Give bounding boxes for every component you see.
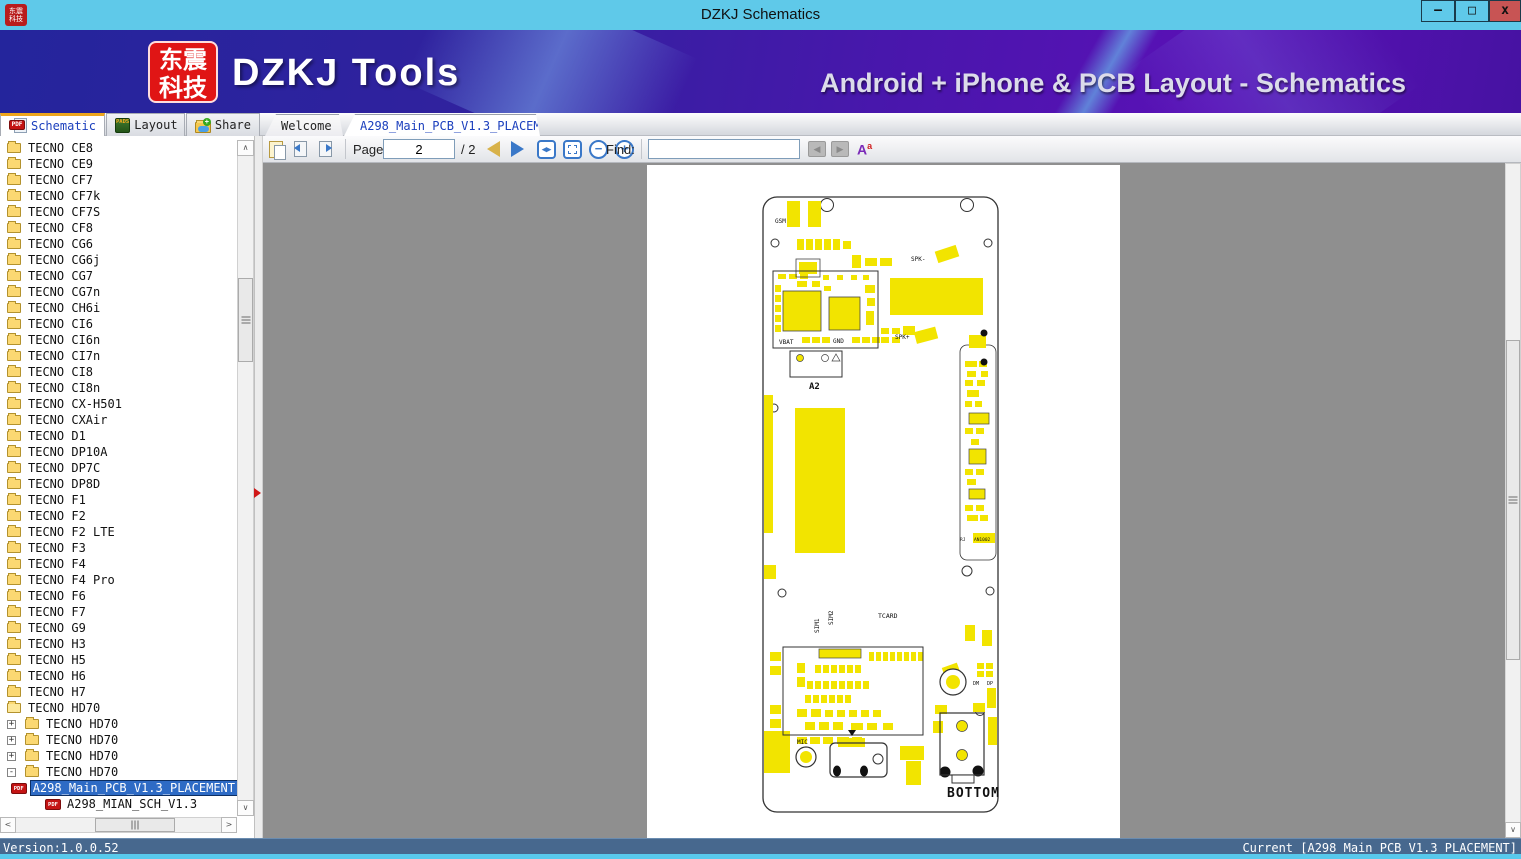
- tree-expander-icon[interactable]: -: [7, 768, 16, 777]
- find-label: Find:: [606, 142, 635, 157]
- tree-item-folder[interactable]: TECNO CF7k: [0, 188, 237, 204]
- tree-item-label: TECNO HD70: [26, 701, 102, 715]
- pcb-label-gnd: GND: [833, 338, 844, 345]
- pads-icon: PADS: [115, 118, 130, 133]
- tree-item-folder[interactable]: -TECNO HD70: [0, 764, 237, 780]
- doc-tab-label: A298_Main_PCB_V1.3_PLACEMENT: [360, 119, 562, 133]
- scroll-up-icon[interactable]: ∧: [237, 140, 254, 156]
- pdf-icon: PDF: [9, 118, 27, 134]
- tree-item-folder[interactable]: TECNO F2 LTE: [0, 524, 237, 540]
- tree-item-folder[interactable]: TECNO CI7n: [0, 348, 237, 364]
- tree-item-folder[interactable]: +TECNO HD70: [0, 748, 237, 764]
- tree-item-folder[interactable]: TECNO CI6: [0, 316, 237, 332]
- tree-item-label: TECNO CI6n: [26, 333, 102, 347]
- close-tab-icon[interactable]: ×: [567, 120, 574, 132]
- share-folder-icon: +: [195, 118, 211, 133]
- close-button[interactable]: x: [1489, 0, 1521, 22]
- folder-icon: [7, 175, 21, 185]
- folder-tree: TECNO CE8TECNO CE9TECNO CF7TECNO CF7kTEC…: [0, 140, 237, 816]
- folder-icon: [7, 447, 21, 457]
- tree-item-folder[interactable]: TECNO CG6j: [0, 252, 237, 268]
- tree-item-folder[interactable]: TECNO F6: [0, 588, 237, 604]
- tree-item-folder[interactable]: TECNO H7: [0, 684, 237, 700]
- pdf-icon: PDF: [11, 783, 27, 794]
- folder-icon: [7, 367, 21, 377]
- match-case-icon[interactable]: Aa: [857, 139, 872, 159]
- folder-icon: [7, 255, 21, 265]
- tree-item-label: TECNO HD70: [44, 733, 120, 747]
- tree-item-folder[interactable]: TECNO DP8D: [0, 476, 237, 492]
- tree-item-label: TECNO CF7: [26, 173, 95, 187]
- product-name: DZKJ Tools: [232, 52, 460, 95]
- tree-item-folder[interactable]: TECNO CE8: [0, 140, 237, 156]
- tree-item-label: TECNO CG6j: [26, 253, 102, 267]
- pcb-label-dp: DP: [987, 681, 993, 687]
- folder-icon: [7, 463, 21, 473]
- fit-page-button[interactable]: [563, 139, 582, 159]
- folder-icon: [7, 623, 21, 633]
- folder-icon: [7, 335, 21, 345]
- header-banner: 东震科技 DZKJ Tools Android + iPhone & PCB L…: [0, 30, 1521, 113]
- brand-logo: 东震科技: [148, 41, 218, 103]
- tab-share[interactable]: + Share: [186, 113, 260, 136]
- tree-item-label: TECNO H7: [26, 685, 88, 699]
- tree-item-label: TECNO H5: [26, 653, 88, 667]
- tree-item-label: TECNO DP7C: [26, 461, 102, 475]
- tree-item-folder[interactable]: TECNO G9: [0, 620, 237, 636]
- tab-schematic[interactable]: PDF Schematic: [0, 113, 105, 136]
- tree-item-label: TECNO H6: [26, 669, 88, 683]
- folder-icon: [7, 655, 21, 665]
- tree-item-label: TECNO D1: [26, 429, 88, 443]
- folder-icon: [7, 207, 21, 217]
- tree-item-label: TECNO G9: [26, 621, 88, 635]
- tree-item-folder[interactable]: TECNO F3: [0, 540, 237, 556]
- tree-item-document[interactable]: PDFA298_Main_PCB_V1.3_PLACEMENT: [0, 780, 237, 796]
- pcb-label-mic: MIC: [797, 739, 808, 746]
- tree-item-label: TECNO HD70: [44, 749, 120, 763]
- tree-item-folder[interactable]: TECNO CE9: [0, 156, 237, 172]
- pcb-label-spk-minus: SPK-: [911, 256, 925, 263]
- find-next-button[interactable]: ▶: [831, 139, 849, 159]
- tree-item-label: TECNO DP8D: [26, 477, 102, 491]
- folder-icon: [7, 559, 21, 569]
- prev-page-button[interactable]: [487, 139, 500, 159]
- tree-item-folder[interactable]: TECNO H3: [0, 636, 237, 652]
- folder-icon: [25, 767, 39, 777]
- folder-icon: [25, 751, 39, 761]
- tree-item-folder[interactable]: TECNO F1: [0, 492, 237, 508]
- viewer-scroll-down-icon[interactable]: ∨: [1505, 822, 1521, 838]
- folder-icon: [7, 239, 21, 249]
- fit-width-button[interactable]: ◂▸: [537, 139, 556, 159]
- tree-item-folder[interactable]: TECNO CF7S: [0, 204, 237, 220]
- folder-icon: [7, 527, 21, 537]
- tree-item-label: TECNO F4 Pro: [26, 573, 117, 587]
- tree-item-label: TECNO CI7n: [26, 349, 102, 363]
- folder-icon: [7, 575, 21, 585]
- version-label: Version:1.0.0.52: [3, 841, 119, 855]
- pcb-label-dm: DM: [973, 681, 979, 687]
- folder-icon: [7, 319, 21, 329]
- folder-icon: [7, 303, 21, 313]
- minimize-button[interactable]: –: [1421, 0, 1455, 22]
- folder-icon: [25, 719, 39, 729]
- tree-expander-icon[interactable]: +: [7, 720, 16, 729]
- folder-icon: [7, 431, 21, 441]
- sidebar-hscroll-thumb[interactable]: [95, 818, 175, 832]
- tab-label: Schematic: [31, 119, 96, 133]
- tree-item-folder[interactable]: TECNO CG7n: [0, 284, 237, 300]
- tree-item-label: A298_MIAN_SCH_V1.3: [65, 797, 199, 811]
- pcb-label-bottom: BOTTOM: [947, 786, 1000, 801]
- tree-item-document[interactable]: PDFA298_MIAN_SCH_V1.3: [0, 796, 237, 812]
- tree-item-folder[interactable]: TECNO H6: [0, 668, 237, 684]
- pcb-label-an1002: AN1002: [974, 537, 991, 543]
- application-window: 东震科技 DZKJ Schematics – □ x 东震科技 DZKJ Too…: [0, 0, 1521, 859]
- rotate-left-button[interactable]: [294, 139, 307, 159]
- sidebar-vscrollbar[interactable]: [237, 140, 254, 816]
- folder-icon: [7, 191, 21, 201]
- scroll-right-icon[interactable]: >: [221, 817, 237, 833]
- pcb-label-a2: A2: [809, 382, 820, 392]
- tree-item-folder[interactable]: TECNO F4: [0, 556, 237, 572]
- tree-item-folder[interactable]: TECNO F4 Pro: [0, 572, 237, 588]
- folder-icon: [7, 495, 21, 505]
- sidebar-vscroll-thumb[interactable]: [238, 278, 253, 362]
- tree-item-folder[interactable]: TECNO F7: [0, 604, 237, 620]
- pcb-placement-drawing: GSM SPK- SPK+ VBAT GND A2 AN1002 RJ SIM1…: [647, 165, 1120, 838]
- doc-tab-placement[interactable]: A298_Main_PCB_V1.3_PLACEMENT ×: [344, 114, 540, 136]
- tree-item-label: TECNO F2: [26, 509, 88, 523]
- tree-item-folder[interactable]: TECNO DP10A: [0, 444, 237, 460]
- folder-icon: [7, 415, 21, 425]
- tree-item-label: TECNO CX-H501: [26, 397, 124, 411]
- title-bar: 东震科技 DZKJ Schematics – □ x: [0, 0, 1521, 30]
- tree-item-label: TECNO CI8: [26, 365, 95, 379]
- pcb-label-rj: RJ: [960, 537, 966, 543]
- tree-item-folder[interactable]: TECNO CI8: [0, 364, 237, 380]
- tree-item-folder[interactable]: TECNO D1: [0, 428, 237, 444]
- tree-item-label: TECNO F4: [26, 557, 88, 571]
- tree-item-folder[interactable]: TECNO H5: [0, 652, 237, 668]
- folder-icon: [7, 511, 21, 521]
- tree-item-folder[interactable]: TECNO CH6i: [0, 300, 237, 316]
- tree-item-label: TECNO CG6: [26, 237, 95, 251]
- tree-item-folder[interactable]: TECNO CX-H501: [0, 396, 237, 412]
- tree-item-folder[interactable]: +TECNO HD70: [0, 716, 237, 732]
- tree-item-label: TECNO CF7k: [26, 189, 102, 203]
- folder-icon: [7, 159, 21, 169]
- folder-icon: [7, 479, 21, 489]
- tree-item-label: TECNO F1: [26, 493, 88, 507]
- tree-item-folder[interactable]: TECNO CXAir: [0, 412, 237, 428]
- scroll-left-icon[interactable]: <: [0, 817, 16, 833]
- folder-icon: [25, 735, 39, 745]
- tree-item-folder[interactable]: TECNO CG7: [0, 268, 237, 284]
- tree-item-label: TECNO F3: [26, 541, 88, 555]
- viewer-vscroll-thumb[interactable]: [1506, 340, 1520, 660]
- scroll-down-icon[interactable]: ∨: [237, 800, 254, 816]
- folder-icon: [7, 607, 21, 617]
- tab-label: Share: [215, 118, 251, 132]
- tab-strip: PDF Schematic PADS Layout + Share Welcom…: [0, 113, 1521, 136]
- tree-item-label: TECNO CE8: [26, 141, 95, 155]
- folder-icon: [7, 687, 21, 697]
- folder-icon: [7, 383, 21, 393]
- tree-item-folder[interactable]: TECNO CI8n: [0, 380, 237, 396]
- tree-item-label: TECNO CG7n: [26, 285, 102, 299]
- folder-icon: [7, 223, 21, 233]
- banner-tagline: Android + iPhone & PCB Layout - Schemati…: [820, 68, 1406, 99]
- find-input[interactable]: [648, 139, 800, 159]
- tree-item-folder[interactable]: TECNO CF8: [0, 220, 237, 236]
- pcb-label-vbat: VBAT: [779, 339, 794, 346]
- doc-tab-welcome[interactable]: Welcome: [265, 114, 343, 136]
- tree-item-label: TECNO CI8n: [26, 381, 102, 395]
- folder-icon: [7, 639, 21, 649]
- viewer-toolbar: Page: / 2 ◂▸ − + Find: ◀ ▶ Aa: [263, 136, 1521, 163]
- pcb-label-sim2: SIM2: [828, 610, 835, 625]
- current-document-label: Current [A298_Main_PCB_V1.3_PLACEMENT]: [1242, 841, 1517, 855]
- find-previous-button[interactable]: ◀: [808, 139, 826, 159]
- pcb-label-gsm: GSM: [775, 218, 786, 225]
- tree-item-label: A298_Main_PCB_V1.3_PLACEMENT: [31, 781, 237, 795]
- tree-item-label: TECNO HD70: [44, 765, 120, 779]
- folder-icon: [7, 287, 21, 297]
- collapse-arrow-icon[interactable]: [254, 488, 261, 498]
- tab-layout[interactable]: PADS Layout: [106, 113, 185, 136]
- tab-label: Layout: [134, 118, 177, 132]
- tree-item-label: TECNO F2 LTE: [26, 525, 117, 539]
- tree-item-label: TECNO CH6i: [26, 301, 102, 315]
- folder-icon: [7, 591, 21, 601]
- folder-icon: [7, 351, 21, 361]
- folder-icon: [7, 143, 21, 153]
- tree-item-folder[interactable]: TECNO CF7: [0, 172, 237, 188]
- tree-item-label: TECNO F6: [26, 589, 88, 603]
- tree-item-label: TECNO CF7S: [26, 205, 102, 219]
- window-title: DZKJ Schematics: [0, 6, 1521, 23]
- tree-expander-icon[interactable]: +: [7, 736, 16, 745]
- tree-item-label: TECNO F7: [26, 605, 88, 619]
- tree-item-label: TECNO CF8: [26, 221, 95, 235]
- tree-item-label: TECNO HD70: [44, 717, 120, 731]
- tree-item-label: TECNO CE9: [26, 157, 95, 171]
- doc-tab-label: Welcome: [281, 119, 332, 133]
- tree-item-label: TECNO CXAir: [26, 413, 109, 427]
- pcb-placement-page: GSM SPK- SPK+ VBAT GND A2 AN1002 RJ SIM1…: [647, 165, 1120, 838]
- tree-item-label: TECNO CI6: [26, 317, 95, 331]
- pcb-label-sim1: SIM1: [814, 618, 821, 633]
- tree-item-folder[interactable]: TECNO HD70: [0, 700, 237, 716]
- tree-item-folder[interactable]: TECNO CI6n: [0, 332, 237, 348]
- tree-item-folder[interactable]: TECNO F2: [0, 508, 237, 524]
- copy-page-button[interactable]: [269, 139, 283, 159]
- folder-icon: [7, 399, 21, 409]
- page-label: Page:: [353, 142, 387, 157]
- tree-item-folder[interactable]: TECNO CG6: [0, 236, 237, 252]
- panel-splitter[interactable]: [255, 136, 263, 838]
- tree-item-label: TECNO H3: [26, 637, 88, 651]
- tree-item-folder[interactable]: +TECNO HD70: [0, 732, 237, 748]
- tree-item-label: TECNO CG7: [26, 269, 95, 283]
- tree-item-label: TECNO DP10A: [26, 445, 109, 459]
- model-tree-panel: TECNO CE8TECNO CE9TECNO CF7TECNO CF7kTEC…: [0, 136, 255, 838]
- folder-icon: [7, 671, 21, 681]
- maximize-button[interactable]: □: [1455, 0, 1489, 22]
- folder-icon: [7, 543, 21, 553]
- tree-item-folder[interactable]: TECNO DP7C: [0, 460, 237, 476]
- document-viewer[interactable]: GSM SPK- SPK+ VBAT GND A2 AN1002 RJ SIM1…: [263, 163, 1505, 838]
- pcb-label-tcard: TCARD: [878, 612, 898, 620]
- next-page-button[interactable]: [511, 139, 524, 159]
- status-bar: Version:1.0.0.52 Current [A298_Main_PCB_…: [0, 838, 1521, 859]
- pcb-label-spk-plus: SPK+: [895, 334, 910, 341]
- page-number-input[interactable]: [383, 139, 455, 159]
- tree-expander-icon[interactable]: +: [7, 752, 16, 761]
- folder-icon: [7, 271, 21, 281]
- rotate-right-button[interactable]: [319, 139, 332, 159]
- pdf-icon: PDF: [45, 799, 61, 810]
- bottom-edge-strip: [0, 854, 1521, 859]
- page-total: / 2: [461, 142, 475, 157]
- folder-icon: [7, 703, 21, 713]
